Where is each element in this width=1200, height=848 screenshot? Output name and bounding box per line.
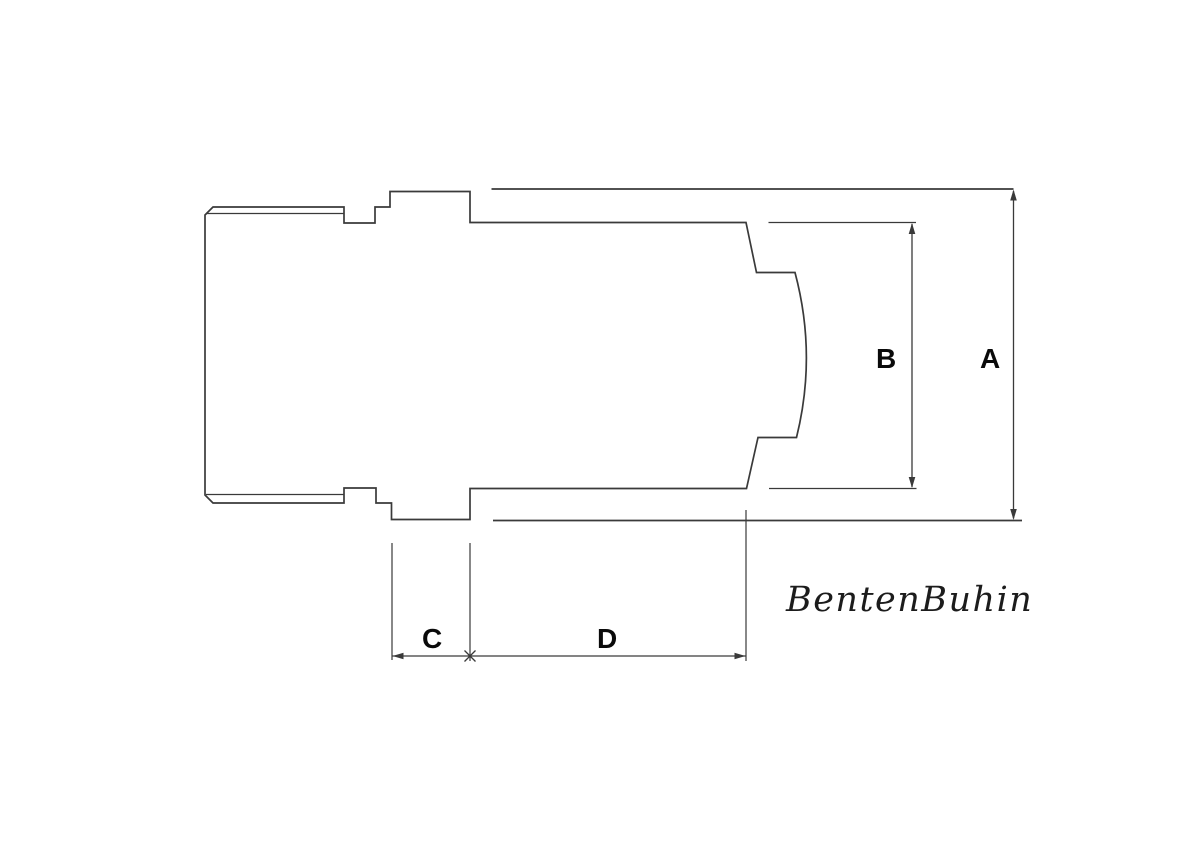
part-geometry bbox=[205, 189, 1022, 521]
dimension-a: A bbox=[980, 190, 1017, 521]
dimension-b: B bbox=[769, 223, 917, 489]
dim-c-arrow-left bbox=[393, 653, 404, 660]
dimension-c-d: C D bbox=[392, 510, 746, 662]
dim-d-label: D bbox=[597, 623, 617, 654]
part-outline bbox=[205, 192, 806, 520]
technical-drawing-canvas: A B C D BentenBuhin bbox=[0, 0, 1200, 848]
dim-a-arrow-top bbox=[1010, 190, 1017, 201]
dim-a-label: A bbox=[980, 343, 1000, 374]
dim-b-arrow-top bbox=[909, 223, 916, 234]
drawing-page: A B C D BentenBuhin bbox=[0, 0, 1200, 848]
dim-b-arrow-bottom bbox=[909, 477, 916, 488]
dim-c-label: C bbox=[422, 623, 442, 654]
watermark-logo-text: BentenBuhin bbox=[785, 580, 1033, 620]
dim-d-arrow-right bbox=[735, 653, 746, 660]
dim-b-label: B bbox=[876, 343, 896, 374]
dim-a-arrow-bottom bbox=[1010, 509, 1017, 520]
